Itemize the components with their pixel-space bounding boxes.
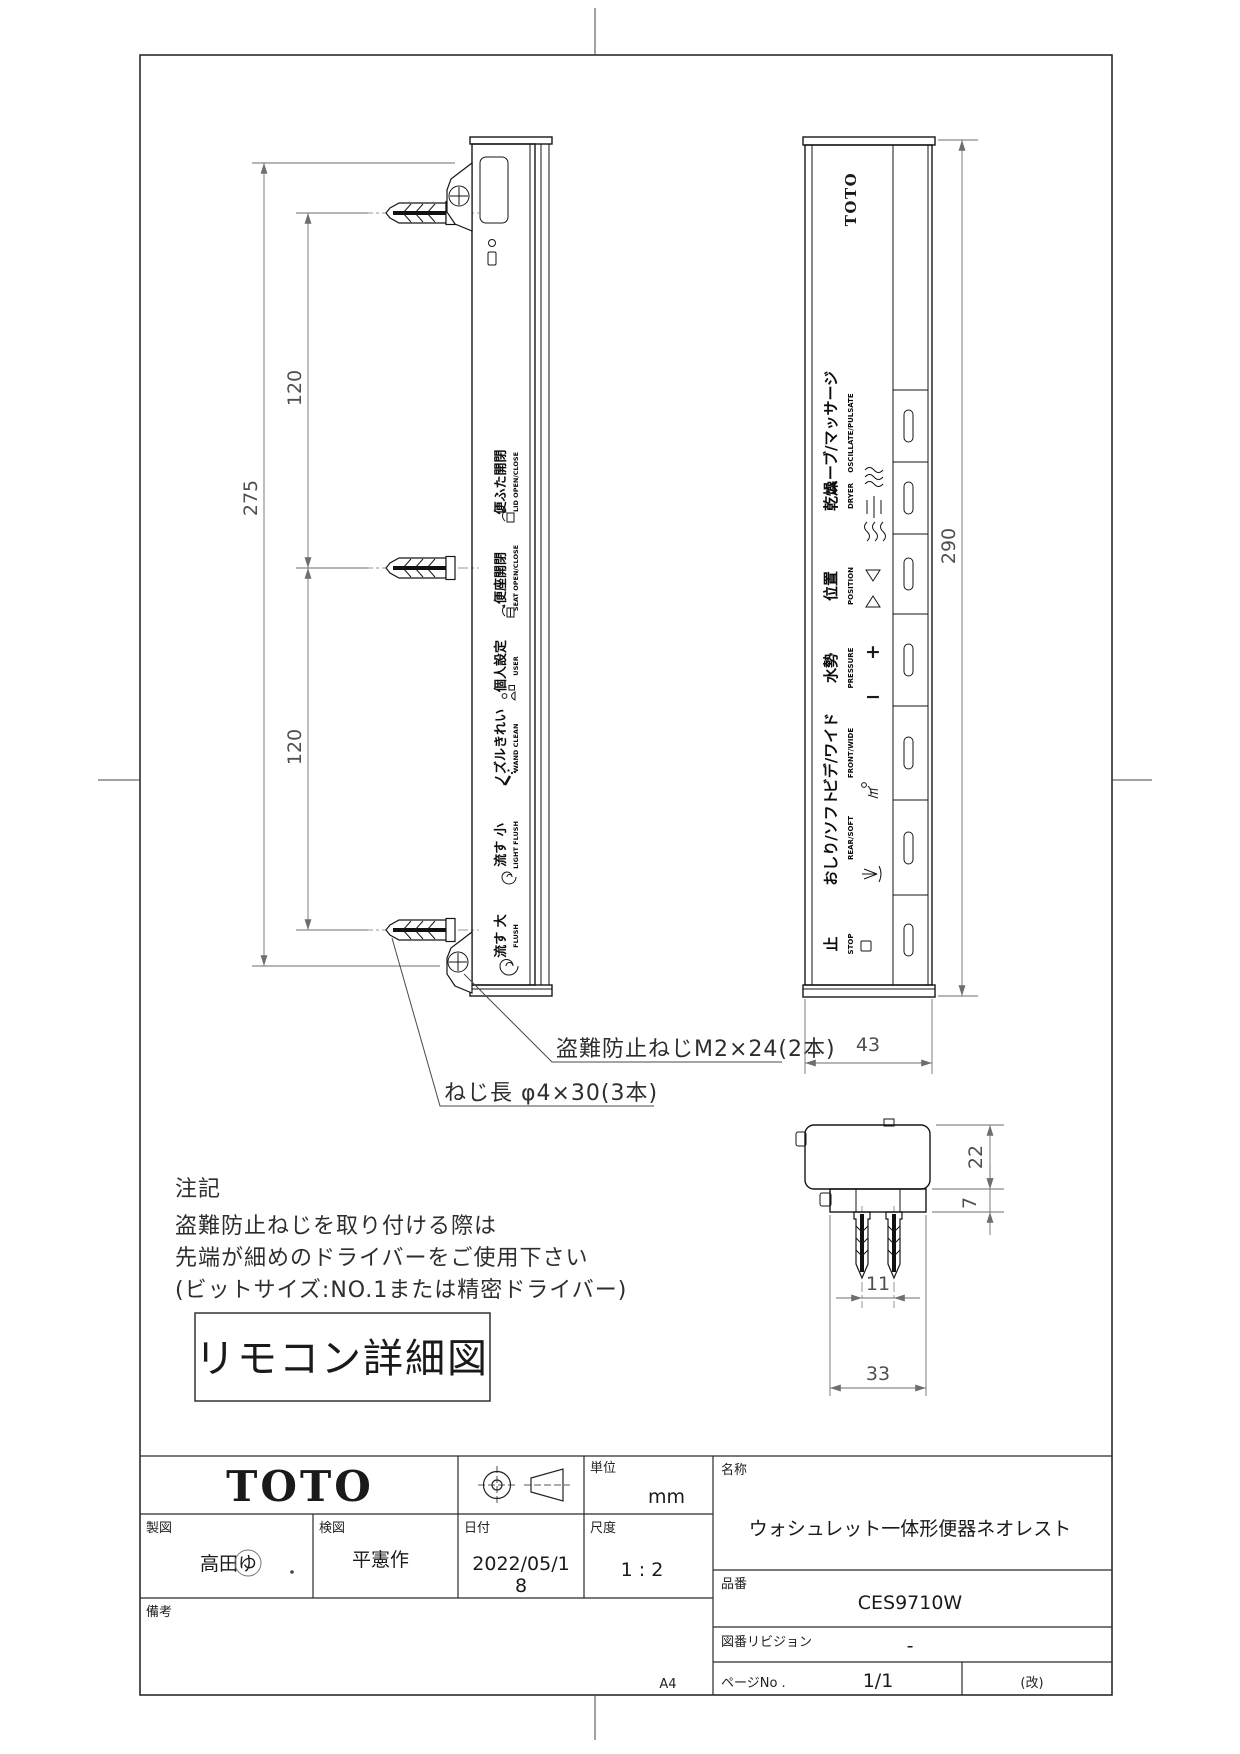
side-label-jp: 流す 小: [493, 823, 509, 867]
front-view-labels: ムーブ/マッサージ OSCILLATE/PULSATE 乾燥 DRYER 位置 …: [822, 371, 855, 955]
drafter-value: 高田ゆ: [200, 1553, 257, 1575]
plus-icon: +: [865, 641, 881, 663]
front-bottom-cap: [803, 985, 935, 997]
mount-plate: [830, 1189, 926, 1212]
row-label-en: REAR/SOFT: [847, 816, 855, 860]
pressure-icons: + −: [865, 641, 881, 708]
oscillate-pulsate-icon: [865, 468, 883, 519]
row-label-en: FRONT/WIDE: [847, 728, 855, 778]
callout-screw-length: ねじ長 φ4×30(3本): [392, 938, 658, 1106]
row-label-jp: ムーブ/マッサージ: [822, 371, 840, 495]
row-label-en: PRESSURE: [847, 647, 855, 688]
side-label-en: WAND CLEAN: [512, 724, 520, 773]
third-angle-projection-icon: [478, 1466, 570, 1504]
row-label-jp: 水勢: [822, 653, 840, 683]
checker-stamp-dot: [290, 1570, 294, 1574]
row-label-jp: 乾燥: [822, 480, 840, 511]
position-icon: [866, 570, 880, 607]
side-view-labels: 便ふた開閉 LID OPEN/CLOSE 便座開閉 SEAT OPEN/CLOS…: [493, 449, 520, 975]
notes-line: (ビットサイズ:NO.1または精密ドライバー): [175, 1278, 627, 1303]
name-label: 名称: [721, 1462, 747, 1478]
remarks-label: 備考: [146, 1604, 172, 1620]
front-view-icons: + −: [861, 468, 886, 952]
date-value: 2022/05/1: [472, 1553, 569, 1575]
dim-text-33: 33: [866, 1363, 890, 1385]
side-label-en: SEAT OPEN/CLOSE: [512, 545, 520, 611]
technical-drawing: 便ふた開閉 LID OPEN/CLOSE 便座開閉 SEAT OPEN/CLOS…: [0, 0, 1240, 1754]
label-flush: 流す 大 FLUSH: [493, 914, 520, 975]
side-window: [480, 157, 508, 223]
side-label-jp: 便ふた開閉: [493, 449, 509, 514]
rear-soft-icon: [862, 866, 881, 882]
dim-text-7: 7: [959, 1197, 981, 1209]
side-wall-plate: [541, 144, 549, 985]
dim-120-upper: 120: [284, 213, 368, 568]
remote-button: [904, 558, 913, 590]
dim-text-275: 275: [240, 480, 262, 516]
label-lid-open-close: 便ふた開閉 LID OPEN/CLOSE: [493, 449, 520, 522]
label-seat-open-close: 便座開閉 SEAT OPEN/CLOSE: [493, 545, 520, 617]
button-dividers: [893, 390, 928, 895]
side-view: 便ふた開閉 LID OPEN/CLOSE 便座開閉 SEAT OPEN/CLOS…: [240, 137, 836, 1106]
notes-title: 注記: [175, 1177, 221, 1202]
dim-22: 22: [932, 1125, 1004, 1189]
part-number-value: CES9710W: [858, 1592, 963, 1614]
side-label-jp: 便座開閉: [493, 552, 509, 604]
side-label-jp: 個人設定: [493, 640, 509, 693]
side-bottom-cap: [470, 985, 552, 996]
drafter-label: 製図: [146, 1521, 172, 1536]
title-block: TOTO 単位 mm 製図 高田ゆ 検図 平憲作 日付 2022/05/1 8 …: [140, 1456, 1112, 1695]
paper-size: A4: [659, 1677, 676, 1692]
dim-7: 7: [932, 1166, 1004, 1235]
detail-label-box: リモコン詳細図: [195, 1313, 490, 1401]
remote-button: [904, 644, 913, 676]
side-top-cap: [470, 137, 552, 144]
dim-120-lower: 120: [284, 568, 368, 930]
checker-label: 検図: [319, 1521, 345, 1536]
top-view: 22 7 11 33: [796, 1119, 1004, 1396]
anti-theft-screw-icon: [449, 186, 469, 206]
row-label-en: POSITION: [847, 567, 855, 605]
side-label-en: USER: [512, 656, 520, 675]
remote-buttons: [904, 410, 913, 956]
side-label-en: LID OPEN/CLOSE: [512, 452, 520, 512]
row-label-jp: おしり/ソフト: [822, 790, 840, 885]
row-label-en: STOP: [847, 934, 855, 955]
dim-text-290: 290: [938, 528, 960, 564]
part-number-label: 品番: [721, 1577, 747, 1592]
label-wand-clean: ノズルきれい WAND CLEAN: [493, 709, 520, 787]
row-label-en: OSCILLATE/PULSATE: [847, 393, 855, 473]
dim-290: 290: [938, 140, 978, 996]
unit-label: 単位: [590, 1460, 616, 1476]
flush-small-icon: [502, 872, 516, 884]
anti-theft-screw-icon: [448, 952, 468, 972]
row-label-en: DRYER: [847, 482, 855, 509]
label-light-flush: 流す 小 LIGHT FLUSH: [493, 821, 520, 884]
dryer-icon: [865, 522, 886, 541]
flush-big-icon: [500, 960, 518, 976]
label-user-setting: 個人設定 USER: [493, 640, 520, 700]
sheet-border: [140, 55, 1112, 1695]
remote-button: [904, 832, 913, 864]
notes: 注記 盗難防止ねじを取り付ける際は 先端が細めのドライバーをご使用下さい (ビッ…: [175, 1177, 627, 1303]
front-wide-icon: [862, 783, 878, 798]
dim-text-120: 120: [284, 370, 306, 406]
row-label-jp: 止: [822, 936, 840, 951]
callout-anti-theft-screw: 盗難防止ねじM2×24(2本): [464, 974, 836, 1062]
notes-line: 盗難防止ねじを取り付ける際は: [175, 1214, 497, 1239]
date-value-wrap: 8: [515, 1575, 527, 1597]
revision-value: -: [907, 1635, 914, 1657]
dim-text-11: 11: [866, 1273, 890, 1295]
drawing-sheet: 便ふた開閉 LID OPEN/CLOSE 便座開閉 SEAT OPEN/CLOS…: [0, 0, 1240, 1754]
row-label-jp: 位置: [822, 571, 840, 601]
remote-button: [904, 737, 913, 769]
side-label-jp: 流す 大: [493, 914, 509, 958]
toto-logo: TOTO: [842, 172, 860, 226]
callout-text: 盗難防止ねじM2×24(2本): [556, 1037, 836, 1062]
unit-value: mm: [648, 1486, 685, 1508]
notes-line: 先端が細めのドライバーをご使用下さい: [175, 1246, 589, 1271]
front-top-cap: [803, 137, 935, 145]
dim-11: 11: [836, 1273, 920, 1298]
remote-button: [904, 410, 913, 442]
top-body: [805, 1125, 930, 1189]
dim-text-120: 120: [284, 729, 306, 765]
date-label: 日付: [464, 1521, 490, 1536]
minus-icon: −: [865, 686, 881, 708]
revision-label: 図番リビジョン: [721, 1635, 812, 1650]
remote-button: [904, 924, 913, 956]
side-label-jp: ノズルきれい: [493, 709, 509, 787]
side-label-en: LIGHT FLUSH: [512, 821, 520, 869]
row-label-jp: ビデ/ワイド: [822, 713, 840, 793]
page-rev-label: (改): [1020, 1676, 1043, 1691]
front-view: TOTO ムーブ/マッサージ OSCILLATE/PULSATE 乾燥 DRYE…: [803, 137, 978, 1074]
callout-text: ねじ長 φ4×30(3本): [444, 1081, 658, 1106]
remote-button: [904, 482, 913, 514]
page-number-value: 1/1: [863, 1670, 894, 1692]
toto-logo-title-block: TOTO: [226, 1462, 374, 1511]
side-label-en: FLUSH: [512, 924, 520, 948]
page-number-label: ページNo .: [721, 1676, 786, 1691]
detail-label-text: リモコン詳細図: [195, 1336, 489, 1382]
scale-label: 尺度: [590, 1520, 616, 1536]
checker-value: 平憲作: [352, 1549, 409, 1571]
sensor-slot-icon: [488, 252, 496, 265]
dim-text-22: 22: [965, 1145, 987, 1169]
dim-text-43: 43: [856, 1034, 880, 1056]
sensor-dot-icon: [489, 240, 496, 247]
dim-33: 33: [830, 1215, 926, 1396]
scale-value: 1 : 2: [621, 1559, 664, 1581]
name-value: ウォシュレット一体形便器ネオレスト: [749, 1518, 1072, 1540]
stop-icon: [861, 941, 871, 951]
